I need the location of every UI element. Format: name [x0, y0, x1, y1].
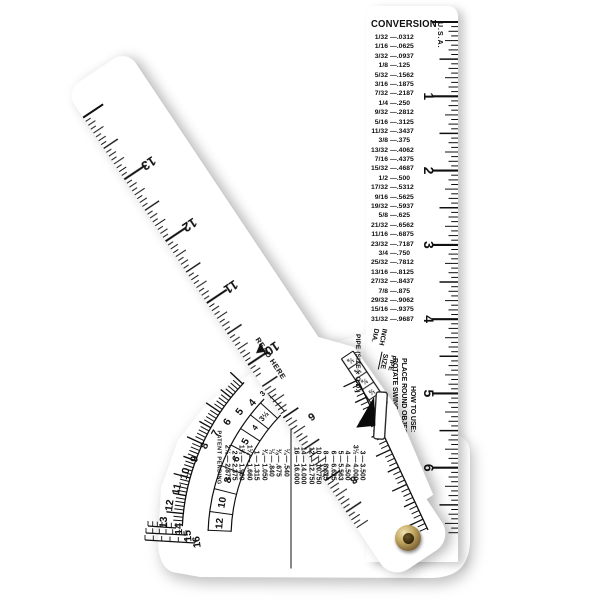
- arm-ruler-tick: [160, 229, 167, 234]
- fraction-cell-label: ⅛: [345, 356, 355, 366]
- arm-ruler-tick: [132, 188, 137, 191]
- arm-ruler-tick: [217, 312, 227, 319]
- arm-inch-number: 12: [180, 215, 200, 236]
- pipe-table-row: 14—14.000: [299, 429, 306, 574]
- pipe-od: 12.750: [307, 463, 314, 484]
- pipe-size: 2: [230, 429, 237, 455]
- inch-number: 4: [421, 315, 437, 323]
- pipe-size: 8: [321, 429, 328, 455]
- pipe-size: ¾: [260, 429, 267, 455]
- pipe-od: 6.625: [329, 463, 336, 480]
- arm-ruler-tick: [117, 165, 122, 168]
- arm-ruler-tick: [209, 304, 214, 307]
- arm-ruler-tick: [212, 306, 219, 311]
- arm-ruler-tick: [122, 172, 127, 175]
- dash: —: [274, 456, 281, 463]
- arm-ruler-tick: [253, 368, 260, 373]
- arm-ruler-tick: [145, 201, 159, 210]
- dash: —: [307, 456, 314, 463]
- pipe-table-row: 5—5.563: [336, 429, 343, 574]
- pipe-od: 2.875: [223, 463, 230, 480]
- arm-ruler-tick: [112, 157, 117, 160]
- arm-ruler-tick: [93, 126, 103, 133]
- arm-ruler-tick: [104, 139, 118, 148]
- dash: —: [336, 456, 343, 463]
- arm-ruler-tick: [173, 249, 178, 252]
- arm-ruler-tick: [83, 104, 103, 117]
- pipe-od: 14.000: [299, 463, 306, 484]
- arm-inch-number: 13: [138, 153, 158, 174]
- dash: —: [282, 456, 289, 463]
- arm-ruler-tick: [142, 203, 147, 206]
- arm-ruler-tick: [251, 365, 256, 368]
- pipe-od: 1.315: [252, 463, 259, 480]
- rivet-hole: [403, 533, 414, 544]
- arm-ruler-tick: [135, 188, 145, 195]
- dash: —: [358, 456, 365, 463]
- arm-ruler-tick: [181, 260, 188, 265]
- dash: —: [321, 456, 328, 463]
- fraction-cell-label: ¼: [352, 366, 362, 377]
- arm-ruler-tick: [186, 263, 200, 272]
- arm-ruler-tick: [178, 257, 183, 260]
- pipe-size: 1½: [238, 429, 245, 455]
- dash: —: [292, 456, 299, 463]
- arm-ruler-tick: [189, 273, 194, 276]
- arm-diameter-tick: [262, 376, 277, 386]
- arm-ruler-tick: [166, 228, 186, 241]
- dash: —: [230, 456, 237, 463]
- arm-diameter-tick: [268, 389, 276, 395]
- arm-ruler-tick: [243, 352, 250, 357]
- arm-ruler-tick: [197, 281, 207, 288]
- arm-ruler-tick: [202, 291, 209, 296]
- pipe-od: 4.500: [343, 463, 350, 480]
- arm-ruler-tick: [199, 288, 204, 291]
- arm-ruler-tick: [124, 166, 144, 179]
- arm-ruler-tick: [215, 311, 220, 314]
- arm-ruler-tick: [106, 149, 111, 152]
- arm-ruler-tick: [130, 182, 137, 187]
- arm-diameter-tick: [286, 418, 292, 422]
- pipe-size: 1¼: [245, 429, 252, 455]
- pipe-od: 16.000: [292, 463, 299, 484]
- pipe-od: 10.750: [314, 463, 321, 484]
- pipe-table-row: 3—3.500: [358, 429, 365, 574]
- pipe-table-row: ¾—1.050: [260, 429, 267, 574]
- pipe-od: 2.375: [230, 463, 237, 480]
- pipe-size: 5: [336, 429, 343, 455]
- pipe-od: 1.050: [260, 463, 267, 480]
- pipe-table-large: 3—3.5003½—4.0004—4.5005—5.5636—6.6258—8.…: [292, 429, 365, 574]
- arm-ruler-tick: [238, 343, 248, 350]
- pipe-od: .540: [282, 463, 289, 476]
- arm-ruler-tick: [207, 290, 227, 303]
- pipe-size: 1: [252, 429, 259, 455]
- arm-ruler-tick: [220, 319, 225, 322]
- dash: —: [223, 456, 230, 463]
- dash: —: [343, 456, 350, 463]
- pipe-table-row: 1½—1.900: [238, 429, 245, 574]
- arm-ruler-tick: [119, 167, 126, 172]
- arm-diameter-tick: [275, 402, 281, 406]
- fraction-cell-divider: [376, 403, 388, 411]
- arm-ruler-tick: [155, 219, 165, 226]
- inch-number: 5: [421, 390, 437, 398]
- pipe-size: ⅜: [274, 429, 281, 455]
- arm-ruler-tick: [127, 180, 132, 183]
- arm-ruler-tick: [256, 373, 261, 376]
- inch-number: 3: [421, 241, 437, 249]
- pipe-table-row: 3½—4.000: [351, 429, 358, 574]
- inch-number: 2: [421, 167, 437, 175]
- arm-ruler-tick: [148, 211, 153, 214]
- pipe-table-row: 1—1.315: [252, 429, 259, 574]
- arm-ruler-tick: [222, 321, 229, 326]
- pipe-od: 1.900: [238, 463, 245, 480]
- pipe-table-row: 12—12.750: [307, 429, 314, 574]
- arm-diameter-tick: [270, 394, 276, 398]
- pipe-table-row: 2—2.375: [230, 429, 237, 574]
- arm-ruler-tick: [137, 195, 142, 198]
- dash: —: [351, 456, 358, 463]
- pipe-table-row: 4—4.500: [343, 429, 350, 574]
- pipe-table-small: ¼—.540⅜—.675½—.840¾—1.0501—1.3151¼—1.660…: [223, 429, 289, 574]
- arm-ruler-tick: [114, 157, 124, 164]
- arm-ruler-tick: [109, 151, 116, 156]
- arm-ruler-tick: [163, 234, 168, 237]
- pipe-size: 6: [329, 429, 336, 455]
- arm-diameter-tick: [281, 410, 287, 414]
- pipe-table-row: 10—10.750: [314, 429, 321, 574]
- arm-diameter-tick: [265, 386, 271, 390]
- arm-ruler-tick: [191, 275, 198, 280]
- arm-ruler-tick: [240, 350, 245, 353]
- arm-ruler-tick: [86, 118, 91, 121]
- pipe-size: 4: [343, 429, 350, 455]
- arm-ruler-tick: [225, 327, 230, 330]
- pipe-size: 12: [307, 429, 314, 455]
- pipe-od: 3.500: [358, 463, 365, 480]
- table-divider: [290, 429, 291, 569]
- arm-ruler-tick: [88, 121, 95, 126]
- arm-ruler-tick: [245, 358, 250, 361]
- pipe-table-row: 8—8.625: [321, 429, 328, 574]
- pipe-od: .675: [274, 463, 281, 476]
- fraction-cell-label: ⅜: [359, 376, 369, 386]
- patent-pending-label: PATENT PENDING: [216, 431, 222, 574]
- inch-number: 1: [421, 92, 437, 100]
- dash: —: [260, 456, 267, 463]
- arm-ruler-tick: [150, 213, 157, 218]
- arm-ruler-tick: [194, 280, 199, 283]
- dash: —: [329, 456, 336, 463]
- dash: —: [245, 456, 252, 463]
- pipe-table-row: 1¼—1.660: [245, 429, 252, 574]
- pipe-od: 5.563: [336, 463, 343, 480]
- dash: —: [267, 456, 274, 463]
- pipe-size: ¼: [282, 429, 289, 455]
- arm-ruler-tick: [99, 136, 106, 141]
- arm-ruler-tick: [171, 244, 178, 249]
- pipe-table-row: ⅜—.675: [274, 429, 281, 574]
- pipe-table-row: 6—6.625: [329, 429, 336, 574]
- arm-ruler-tick: [101, 141, 106, 144]
- arm-ruler-tick: [96, 134, 101, 137]
- product-photo-pipe-gauge: CONVERSION U.S.A. 1/32—.03121/16—.06253/…: [0, 0, 600, 600]
- pipe-size: 16: [292, 429, 299, 455]
- arm-diameter-tick: [283, 408, 298, 418]
- arm-ruler-tick: [176, 250, 186, 257]
- arm-ruler-tick: [140, 198, 147, 203]
- pipe-table-row: ¼—.540: [282, 429, 289, 574]
- pipe-size: 2½: [223, 429, 230, 455]
- pipe-od: 1.660: [245, 463, 252, 480]
- fraction-cell-label: ½: [367, 387, 376, 397]
- pipe-table-row: 2½—2.875: [223, 429, 230, 574]
- pipe-table-row: ½—.840: [267, 429, 274, 574]
- arm-inch-number: 11: [221, 277, 241, 297]
- pivot-rivet: [395, 525, 421, 551]
- arm-ruler-tick: [91, 126, 96, 129]
- arm-ruler-tick: [168, 242, 173, 245]
- pipe-size: 3: [358, 429, 365, 455]
- pipe-table-row: 16—16.000: [292, 429, 299, 574]
- dash: —: [238, 456, 245, 463]
- arm-ruler-tick: [233, 337, 240, 342]
- arm-ruler-tick: [184, 265, 189, 268]
- arm-diameter-tick: [289, 420, 297, 426]
- arm-ruler-tick: [158, 226, 163, 229]
- dash: —: [314, 456, 321, 463]
- arm-diameter-number: 6: [305, 410, 317, 423]
- pipe-size: 10: [314, 429, 321, 455]
- pipe-size: 14: [299, 429, 306, 455]
- pipe-od: .840: [267, 463, 274, 476]
- pipe-od: 8.625: [321, 463, 328, 480]
- dash: —: [299, 456, 306, 463]
- pipe-od: 4.000: [351, 463, 358, 480]
- pipe-size: ½: [267, 429, 274, 455]
- arm-ruler-tick: [204, 296, 209, 299]
- dash: —: [252, 456, 259, 463]
- pipe-size-table: 3—3.5003½—4.0004—4.5005—5.5636—6.6258—8.…: [214, 429, 366, 574]
- arm-ruler-tick: [227, 324, 241, 333]
- pipe-size: 3½: [351, 429, 358, 455]
- arm-ruler-tick: [153, 219, 158, 222]
- arm-ruler-tick: [235, 342, 240, 345]
- arm-ruler-tick: [230, 334, 235, 337]
- arm-diameter-tick: [278, 404, 286, 410]
